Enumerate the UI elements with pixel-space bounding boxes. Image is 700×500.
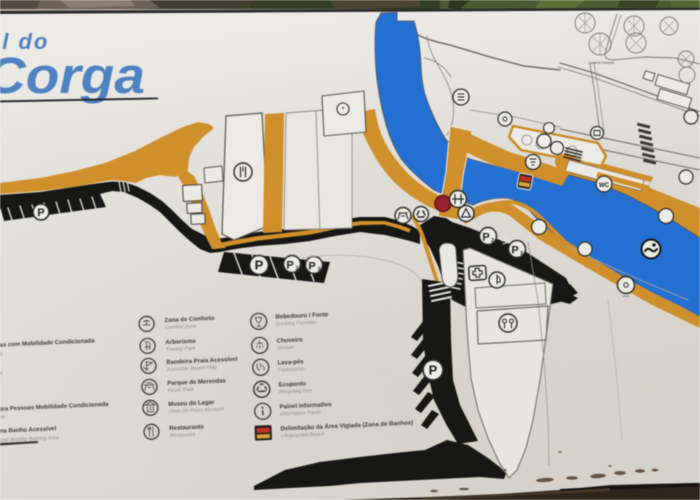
svg-text:ne: ne [0, 415, 5, 421]
svg-text:P: P [429, 363, 438, 378]
svg-text:P: P [255, 258, 264, 273]
svg-text:Ecoponto: Ecoponto [278, 381, 306, 388]
svg-text:ng: ng [0, 351, 2, 357]
svg-text:ce: ce [0, 371, 3, 377]
svg-text:3: 3 [520, 251, 523, 257]
svg-text:P: P [308, 261, 315, 273]
svg-text:wc: wc [602, 193, 606, 197]
svg-text:Caminho Pedestre: Caminho Pedestre [588, 61, 615, 65]
svg-text:Shower: Shower [277, 345, 295, 352]
svg-text:2: 2 [296, 266, 299, 272]
svg-text:Lava-pés: Lava-pés [277, 359, 304, 366]
svg-text:P: P [482, 232, 489, 244]
svg-text:*: * [342, 107, 345, 114]
svg-text:Picnic Park: Picnic Park [168, 387, 195, 394]
svg-text:3: 3 [318, 267, 321, 273]
svg-text:WC: WC [599, 183, 610, 189]
svg-text:Corga: Corga [0, 47, 145, 104]
svg-text:P: P [511, 245, 518, 257]
svg-text:Restaurant: Restaurant [170, 432, 196, 439]
svg-text:2: 2 [491, 238, 494, 244]
svg-text:P: P [286, 260, 293, 272]
svg-text:Chuveiro: Chuveiro [276, 337, 303, 344]
svg-text:area: area [623, 294, 629, 298]
svg-text:P: P [37, 207, 44, 219]
svg-text:Footwasher: Footwasher [278, 366, 306, 373]
